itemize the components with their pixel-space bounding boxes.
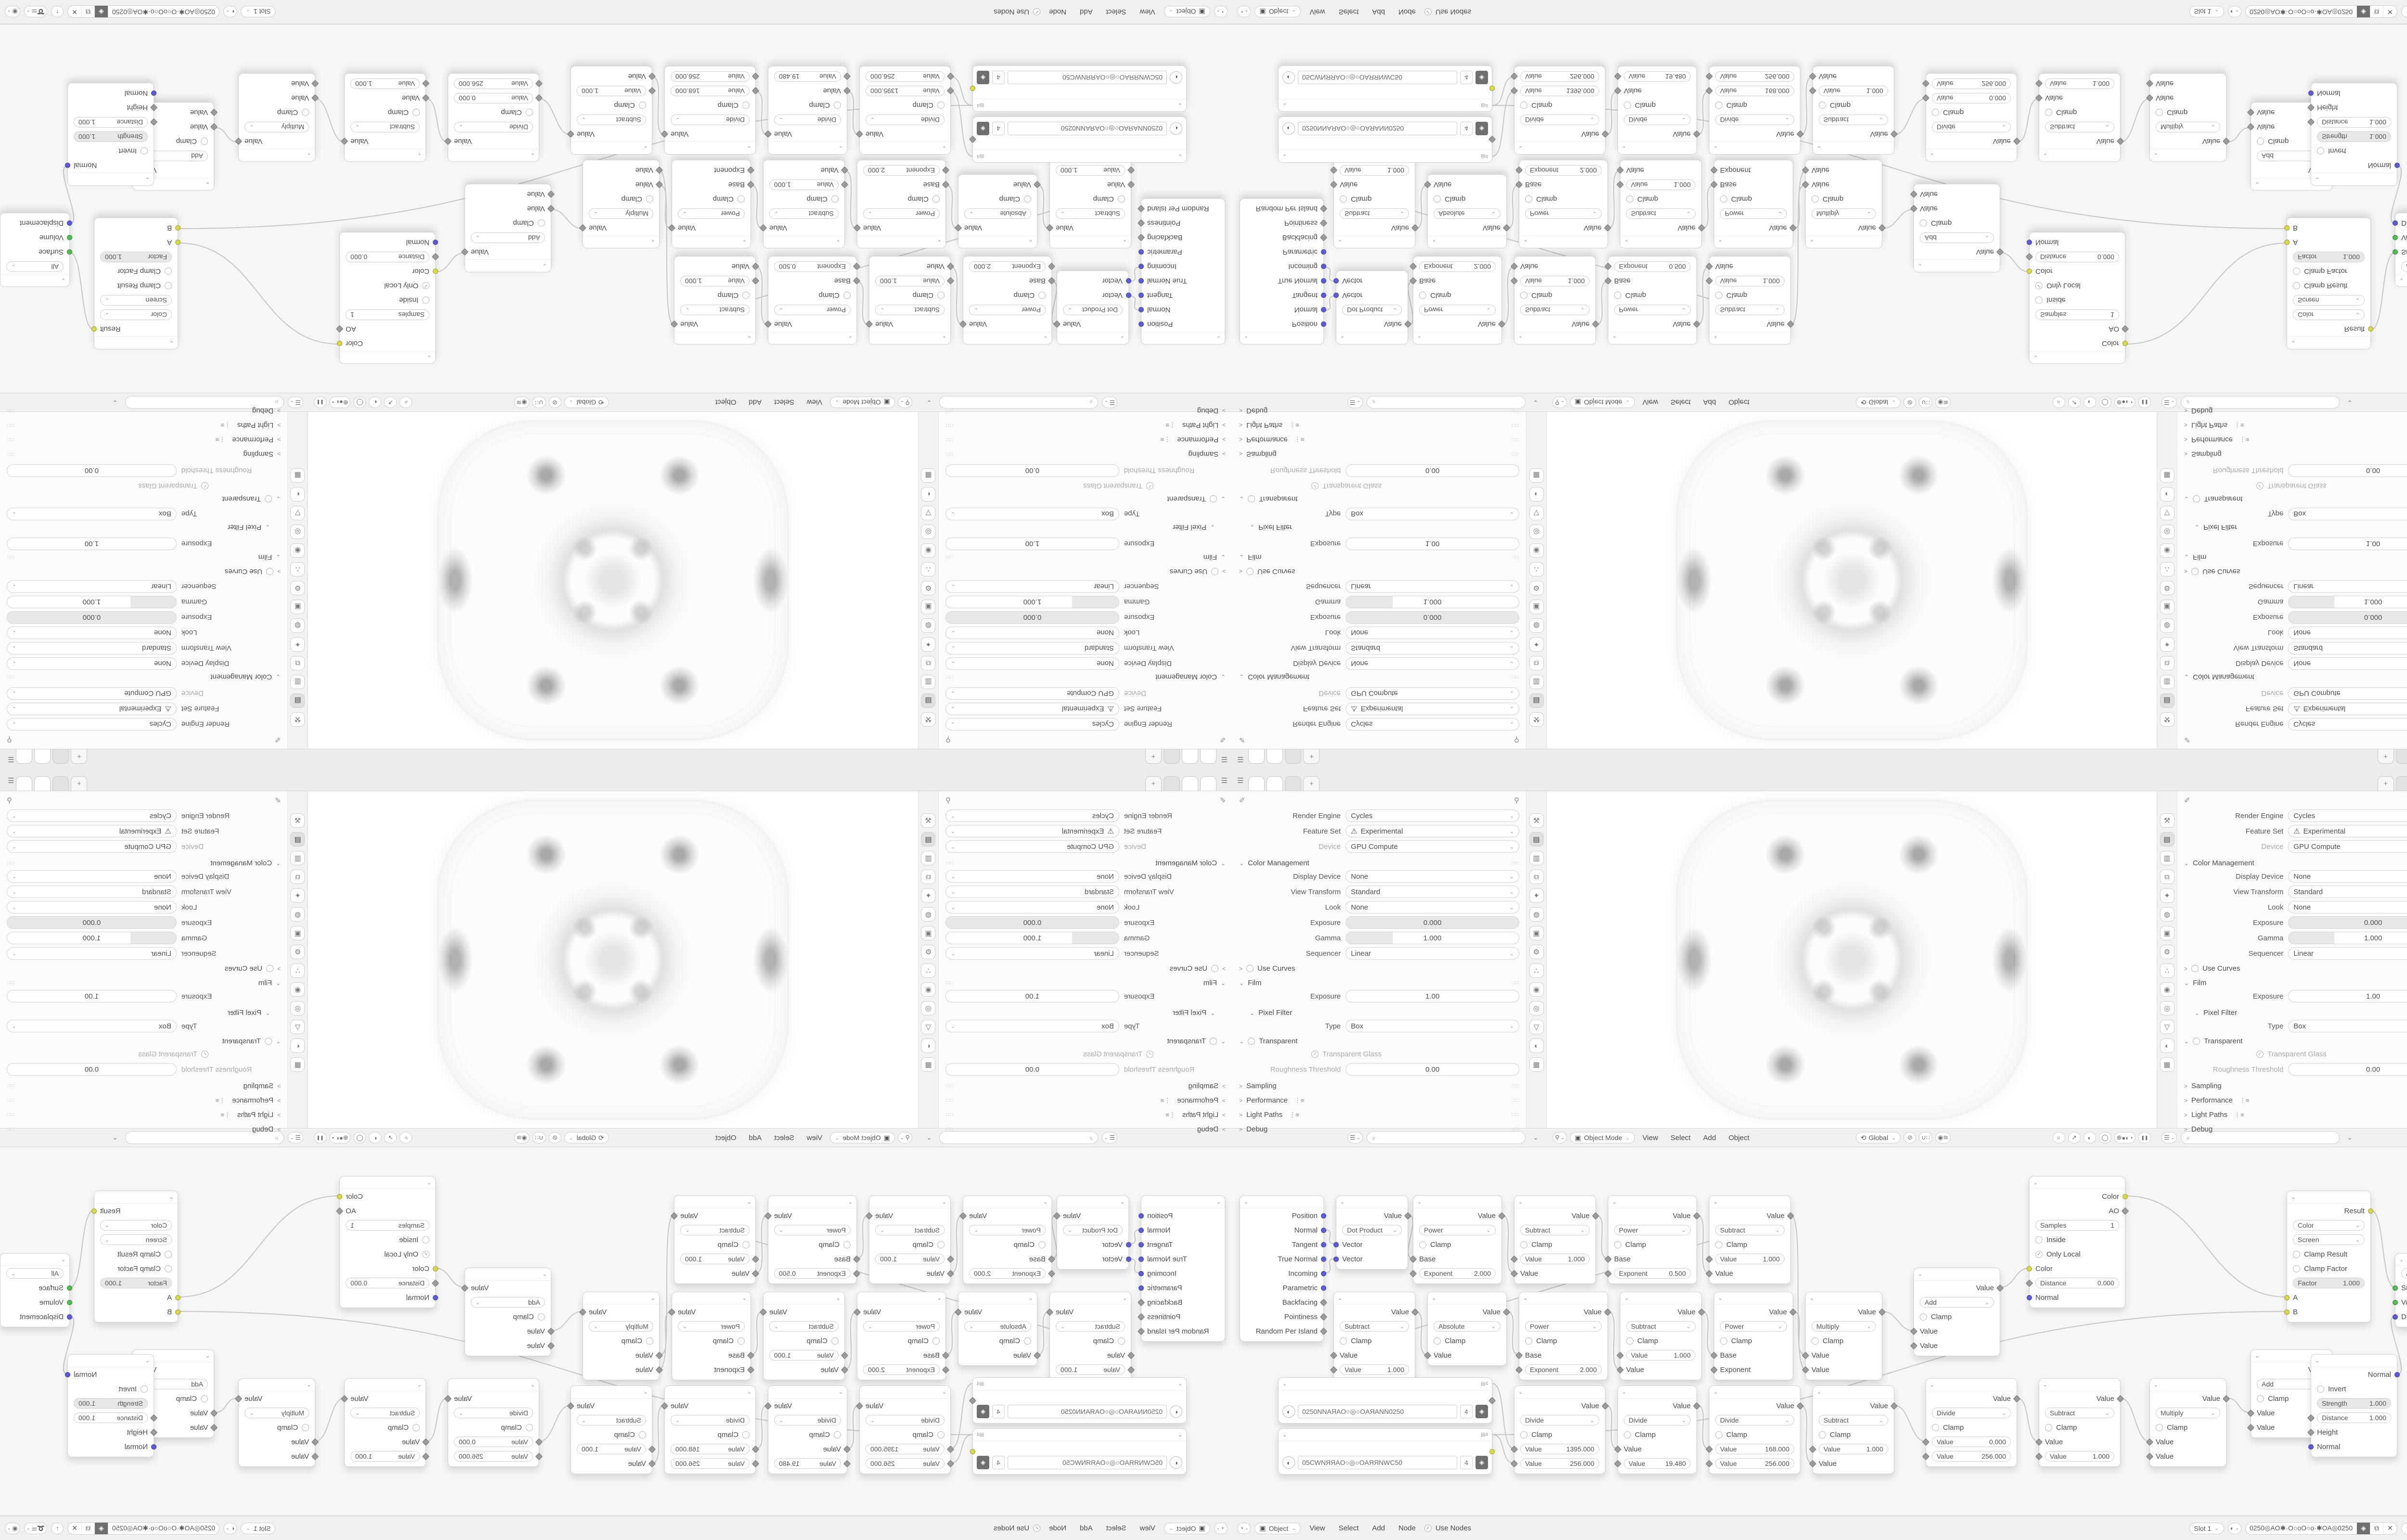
add-slot-button[interactable]: + bbox=[71, 776, 87, 791]
render-engine-select[interactable]: Cycles⌄ bbox=[1346, 809, 1519, 822]
viewport-3d[interactable] bbox=[1547, 412, 2157, 749]
node-checkbox[interactable] bbox=[1340, 196, 1347, 203]
pin-icon[interactable]: ⚲ bbox=[7, 796, 12, 805]
node-checkbox[interactable] bbox=[302, 109, 309, 116]
use-curves-checkbox[interactable] bbox=[266, 568, 273, 575]
node-sub6[interactable]: ⌄ValueSubtract⌄ClampValueValue1.000 bbox=[344, 73, 426, 162]
shader-mode-select[interactable]: ▣Object⌄ bbox=[1255, 1523, 1301, 1534]
magnify-icon[interactable]: ⌕ bbox=[400, 397, 412, 408]
node-collapse-chevron[interactable]: ⌄ bbox=[1714, 1292, 1793, 1305]
node-checkbox[interactable] bbox=[1715, 1431, 1722, 1438]
menu-node[interactable]: Node bbox=[1044, 1524, 1071, 1532]
film-exposure-field[interactable]: 1.00 bbox=[7, 990, 177, 1002]
render-slot-tab-active[interactable] bbox=[1164, 776, 1180, 791]
node-pow1[interactable]: ⌄ValuePower⌄ClampBaseExponent2.000 bbox=[963, 1195, 1052, 1284]
node-checkbox[interactable] bbox=[1626, 196, 1633, 203]
node-checkbox[interactable] bbox=[2035, 1236, 2043, 1244]
props-tab-modifiers[interactable]: ⚙ bbox=[2160, 581, 2174, 595]
props-tab-view-layer[interactable]: ⧉ bbox=[291, 870, 305, 884]
transparent-glass-checkbox[interactable]: ✓ bbox=[1311, 1051, 1319, 1058]
node-checkbox[interactable] bbox=[1812, 1337, 1819, 1345]
menu-icon[interactable]: ☰ bbox=[1237, 756, 1243, 764]
node-operation-select[interactable]: Divide⌄ bbox=[671, 1415, 750, 1425]
node-add1[interactable]: ⌄ValueAdd⌄ClampValueValue bbox=[1914, 184, 2000, 272]
magnify-icon[interactable]: ⌕ bbox=[2053, 1132, 2065, 1143]
props-tab-render[interactable]: ▤ bbox=[2160, 832, 2174, 847]
menu-view[interactable]: View bbox=[1305, 1524, 1330, 1532]
node-value-field[interactable]: Value1.000 bbox=[577, 1444, 646, 1454]
render-slot-tab[interactable] bbox=[1248, 776, 1265, 791]
look-select[interactable]: None⌄ bbox=[2288, 901, 2407, 913]
props-tab-view-layer[interactable]: ⧉ bbox=[291, 656, 305, 670]
node-collapse-chevron[interactable]: ⌄ bbox=[1813, 141, 1894, 154]
node-div1[interactable]: ⌄ValueDivide⌄ClampValue1395.000Value256.… bbox=[1514, 66, 1605, 154]
node-operation-select[interactable]: Add⌄ bbox=[471, 232, 545, 243]
node-collapse-chevron[interactable]: ⌄ bbox=[764, 1292, 844, 1305]
nodegroup-user-count[interactable]: 4 bbox=[1460, 71, 1473, 84]
props-tab-world[interactable]: ◍ bbox=[2160, 618, 2174, 633]
node-collapse-chevron[interactable]: ⌄ bbox=[1336, 332, 1408, 344]
render-slot-tab-active[interactable] bbox=[2396, 749, 2407, 764]
render-slot-tab[interactable] bbox=[1248, 749, 1265, 764]
snap-button[interactable]: ∪∷ bbox=[1919, 397, 1932, 408]
shader-mode-select[interactable]: ▣Object⌄ bbox=[1164, 6, 1210, 18]
node-collapse-chevron[interactable]: ⌄ bbox=[860, 1386, 950, 1399]
node-sub1[interactable]: ⌄ValueSubtract⌄ClampValue1.000Value bbox=[1514, 1195, 1596, 1284]
gamma-slider[interactable]: 1.000 bbox=[1346, 932, 1519, 944]
node-checkbox[interactable] bbox=[1038, 1241, 1046, 1248]
props-tab-modifiers[interactable]: ⚙ bbox=[291, 581, 305, 595]
node-checkbox[interactable] bbox=[165, 268, 172, 275]
debug-section[interactable]: >Debug∷∷ bbox=[1239, 1125, 1519, 1133]
material-datablock[interactable]: 0250◎AO✱·O○oO○o·✱OA◎0250 ◈ ⧉ ✕ bbox=[67, 1522, 220, 1535]
proportional-editing-button[interactable]: ◉≋ bbox=[1935, 1132, 1951, 1143]
node-value-field[interactable]: Value1395.000 bbox=[1520, 86, 1599, 96]
node-checkbox[interactable] bbox=[2257, 138, 2264, 145]
node-checkbox[interactable] bbox=[2045, 1424, 2052, 1431]
menu-view[interactable]: View bbox=[1135, 8, 1160, 16]
node-value-field[interactable]: Value256.000 bbox=[671, 1458, 750, 1469]
light-paths-section[interactable]: >Light Paths⋮≡∷∷ bbox=[945, 421, 1226, 429]
menu-view[interactable]: View bbox=[1305, 8, 1330, 16]
props-tab-render[interactable]: ▤ bbox=[1529, 832, 1544, 847]
performance-section[interactable]: >Performance⋮≡∷∷ bbox=[7, 436, 281, 444]
props-menu-button[interactable]: ☰⌄ bbox=[1347, 1132, 1363, 1143]
debug-section[interactable]: >Debug∷∷ bbox=[945, 1125, 1226, 1133]
nodegroup-user-count[interactable]: 4 bbox=[992, 1456, 1005, 1469]
node-checkbox[interactable] bbox=[1434, 1337, 1441, 1345]
color-management-section[interactable]: ⌄Color Management∷∷ bbox=[2184, 859, 2407, 867]
pixel-filter-type-select[interactable]: Box⌄ bbox=[945, 508, 1119, 520]
use-nodes-checkbox[interactable]: ✓ bbox=[1424, 8, 1432, 15]
collapse-icon[interactable]: ⌄ bbox=[1529, 1132, 1542, 1143]
node-socket[interactable] bbox=[2393, 235, 2398, 241]
node-sub3[interactable]: ⌄ValueSubtract⌄ClampValueValue1.000 bbox=[1333, 1292, 1415, 1380]
node-operation-select[interactable]: Subtract⌄ bbox=[2045, 1408, 2114, 1418]
color-management-section[interactable]: ⌄Color Management∷∷ bbox=[945, 859, 1226, 867]
node-checkbox[interactable] bbox=[141, 1386, 148, 1393]
node-socket[interactable] bbox=[1139, 1257, 1144, 1262]
node-collapse-chevron[interactable]: ⌄ bbox=[2150, 149, 2226, 161]
color-management-section[interactable]: ⌄Color Management∷∷ bbox=[2184, 673, 2407, 681]
node-value-field[interactable]: Distance1.000 bbox=[74, 1412, 148, 1423]
render-slot-tab[interactable] bbox=[1182, 776, 1198, 791]
node-pow3[interactable]: ⌄ValuePower⌄ClampBaseExponent2.000 bbox=[857, 160, 946, 248]
feature-set-select[interactable]: ⚠Experimental⌄ bbox=[2288, 825, 2407, 837]
nodegroup-user-count[interactable]: 4 bbox=[1460, 122, 1473, 135]
material-datablock[interactable]: 0250◎AO✱·O○oO○o·✱OA◎0250 ◈ ⧉ ✕ bbox=[2245, 6, 2397, 18]
node-geo[interactable]: ⌄PositionNormalTangentTrue NormalIncomin… bbox=[1240, 1195, 1324, 1342]
node-operation-select[interactable]: Divide⌄ bbox=[454, 122, 533, 132]
exposure-slider[interactable]: 0.000 bbox=[2288, 916, 2407, 929]
fake-user-shield-icon[interactable]: ◈ bbox=[977, 1405, 989, 1418]
render-slot-tab[interactable] bbox=[1200, 749, 1216, 764]
node-collapse-chevron[interactable]: ⌄ bbox=[1618, 141, 1696, 154]
node-div4[interactable]: ⌄ValueDivide⌄ClampValue0.000Value256.000 bbox=[1926, 1378, 2017, 1467]
node-collapse-chevron[interactable]: ⌄ bbox=[1620, 235, 1701, 248]
node-checkbox[interactable] bbox=[932, 196, 940, 203]
node-checkbox[interactable] bbox=[1624, 1431, 1631, 1438]
transparent-glass-row[interactable]: ✓ Transparent Glass bbox=[1311, 482, 1519, 490]
node-value-field[interactable]: Value256.000 bbox=[866, 71, 945, 82]
roughness-threshold-field[interactable]: 0.00 bbox=[2288, 464, 2407, 477]
node-operation-select[interactable]: Divide⌄ bbox=[1520, 1415, 1599, 1425]
node-collapse-chevron[interactable]: ⌄ bbox=[583, 1292, 659, 1305]
node-out[interactable]: ⌄All⌄SurfaceVolumeDisplacement bbox=[0, 213, 70, 287]
node-operation-select[interactable]: Subtract⌄ bbox=[1626, 1321, 1695, 1332]
editor-type-button[interactable]: ◔⌄ bbox=[1214, 1523, 1228, 1534]
node-operation-select[interactable]: Power⌄ bbox=[969, 1225, 1046, 1235]
node-operation-select[interactable]: Power⌄ bbox=[678, 208, 745, 219]
node-operation-select[interactable]: Divide⌄ bbox=[1520, 115, 1599, 125]
node-sub2[interactable]: ⌄ValueSubtract⌄ClampValue1.000Value bbox=[674, 1195, 756, 1284]
node-checkbox[interactable] bbox=[937, 1431, 945, 1438]
nodegroup-name[interactable]: 0250NNAЯAO○◎○OAЯANN0250 bbox=[1298, 1405, 1457, 1418]
node-mix[interactable]: ⌄ResultColor⌄Screen⌄Clamp ResultClamp Fa… bbox=[94, 1191, 178, 1322]
node-checkbox[interactable] bbox=[834, 1431, 841, 1438]
node-grpA[interactable]: ⌄▤4◐0250NNAЯAO○◎○OAЯANN02504◈ bbox=[972, 116, 1187, 163]
node-socket[interactable] bbox=[91, 327, 97, 332]
node-value-field[interactable]: Value1.000 bbox=[1626, 1350, 1695, 1360]
display-device-select[interactable]: None⌄ bbox=[7, 870, 177, 883]
transparent-row[interactable]: ⌄ Transparent bbox=[2184, 495, 2407, 503]
add-slot-button[interactable]: + bbox=[1303, 776, 1320, 791]
props-tab-output[interactable]: ▥ bbox=[1529, 675, 1544, 689]
feature-set-select[interactable]: ⚠Experimental⌄ bbox=[2288, 703, 2407, 715]
display-device-select[interactable]: None⌄ bbox=[2288, 870, 2407, 883]
node-collapse-chevron[interactable]: ⌄ bbox=[94, 336, 178, 349]
node-value-field[interactable]: Value256.000 bbox=[866, 1458, 945, 1469]
node-geo[interactable]: ⌄PositionNormalTangentTrue NormalIncomin… bbox=[1141, 198, 1225, 345]
props-tab-texture[interactable]: ▦ bbox=[2160, 1057, 2174, 1072]
feature-set-select[interactable]: ⚠Experimental⌄ bbox=[1346, 825, 1519, 837]
node-checkbox[interactable] bbox=[1118, 196, 1125, 203]
props-tab-data[interactable]: ▽ bbox=[1529, 1020, 1544, 1034]
props-tab-tool[interactable]: ⚒ bbox=[1529, 813, 1544, 828]
node-checkbox[interactable] bbox=[2293, 268, 2300, 275]
node-pow3[interactable]: ⌄ValuePower⌄ClampBaseExponent2.000 bbox=[1519, 1292, 1608, 1380]
node-socket[interactable] bbox=[2393, 221, 2398, 226]
node-socket[interactable] bbox=[67, 1314, 72, 1320]
gamma-slider[interactable]: 1.000 bbox=[7, 932, 177, 944]
node-value-field[interactable]: Distance1.000 bbox=[2317, 117, 2391, 128]
pause-render-button[interactable]: ❚❚ bbox=[2138, 1132, 2151, 1143]
pixel-filter-type-select[interactable]: Box⌄ bbox=[2288, 508, 2407, 520]
material-name[interactable]: 0250◎AO✱·O○oO○o·✱OA◎0250 bbox=[2246, 6, 2356, 18]
view-transform-select[interactable]: Standard⌄ bbox=[2288, 885, 2407, 898]
node-operation-select[interactable]: Subtract⌄ bbox=[875, 305, 945, 315]
props-tab-physics[interactable]: ◉ bbox=[291, 982, 305, 997]
menu-node[interactable]: Node bbox=[1394, 8, 1421, 16]
node-pow4[interactable]: ⌄ValuePower⌄ClampBaseExponent bbox=[672, 1292, 751, 1380]
node-collapse-chevron[interactable]: ⌄ bbox=[958, 1292, 1037, 1305]
fake-user-icon[interactable]: ◈ bbox=[95, 1523, 108, 1534]
node-operation-select[interactable]: Screen⌄ bbox=[2293, 1234, 2365, 1245]
node-collapse-chevron[interactable]: ⌄ bbox=[239, 149, 315, 161]
feature-set-select[interactable]: ⚠Experimental⌄ bbox=[945, 825, 1119, 837]
props-tab-world[interactable]: ◍ bbox=[291, 618, 305, 633]
roughness-threshold-field[interactable]: 0.00 bbox=[945, 1063, 1119, 1076]
shading-mode-buttons[interactable]: ⊕●◐◔ bbox=[2114, 1132, 2135, 1143]
transparent-row[interactable]: ⌄ Transparent bbox=[945, 495, 1226, 503]
nodegroup-icon[interactable]: ◐ bbox=[1282, 122, 1295, 135]
props-tab-constraints[interactable]: ◎ bbox=[2160, 1001, 2174, 1015]
node-operation-select[interactable]: Power⌄ bbox=[1419, 305, 1496, 315]
xray-toggle[interactable]: ◯ bbox=[353, 397, 366, 408]
sequencer-select[interactable]: Linear⌄ bbox=[945, 580, 1119, 593]
node-socket[interactable] bbox=[2393, 1300, 2398, 1305]
node-socket[interactable] bbox=[1333, 1242, 1339, 1247]
node-socket[interactable] bbox=[65, 1372, 70, 1377]
menu-add[interactable]: Add bbox=[1367, 8, 1390, 16]
use-nodes-checkbox[interactable]: ✓ bbox=[1033, 8, 1040, 15]
node-value-field[interactable]: Value256.000 bbox=[454, 1451, 533, 1462]
node-value-field[interactable]: Value19.480 bbox=[1624, 71, 1691, 82]
transparent-row[interactable]: ⌄ Transparent bbox=[1239, 495, 1519, 503]
node-collapse-chevron[interactable]: ⌄ bbox=[1714, 235, 1793, 248]
pixel-filter-section[interactable]: ⌄Pixel Filter bbox=[1250, 1009, 1519, 1017]
material-name[interactable]: 0250◎AO✱·O○oO○o·✱OA◎0250 bbox=[108, 6, 219, 18]
view-transform-select[interactable]: Standard⌄ bbox=[7, 642, 177, 654]
look-select[interactable]: None⌄ bbox=[1346, 627, 1519, 639]
look-select[interactable]: None⌄ bbox=[945, 901, 1119, 913]
node-operation-select[interactable]: All⌄ bbox=[2401, 1268, 2407, 1279]
transparent-checkbox[interactable] bbox=[2193, 1038, 2200, 1045]
transparent-checkbox[interactable] bbox=[1248, 1038, 1255, 1045]
props-tab-world[interactable]: ◍ bbox=[291, 907, 305, 922]
device-select[interactable]: GPU Compute⌄ bbox=[2288, 687, 2407, 700]
node-collapse-chevron[interactable]: ⌄ bbox=[869, 332, 950, 344]
props-tab-physics[interactable]: ◉ bbox=[1529, 982, 1544, 997]
transparent-row[interactable]: ⌄ Transparent bbox=[7, 495, 281, 503]
node-value-field[interactable]: Exponent2.000 bbox=[1525, 165, 1602, 176]
material-datablock[interactable]: 0250◎AO✱·O○oO○o·✱OA◎0250 ◈ ⧉ ✕ bbox=[67, 6, 220, 18]
nodegroup-icon[interactable]: ◐ bbox=[1170, 1405, 1182, 1418]
pause-render-button[interactable]: ❚❚ bbox=[2138, 397, 2151, 408]
use-curves-row[interactable]: > Use Curves bbox=[2184, 567, 2407, 576]
transparent-glass-row[interactable]: ✓ Transparent Glass bbox=[7, 1050, 208, 1058]
node-checkbox[interactable] bbox=[1419, 1241, 1426, 1248]
node-abs1[interactable]: ⌄ValueAbsolute⌄ClampValue bbox=[958, 174, 1037, 248]
collapse-icon[interactable]: ⌄ bbox=[923, 397, 935, 408]
transparent-row[interactable]: ⌄ Transparent bbox=[1239, 1037, 1519, 1045]
props-tab-object[interactable]: ▣ bbox=[921, 926, 936, 940]
props-tab-texture[interactable]: ▦ bbox=[921, 468, 936, 483]
node-socket[interactable] bbox=[1139, 1271, 1144, 1276]
node-checkbox[interactable] bbox=[141, 148, 148, 155]
node-value-field[interactable]: Value1.000 bbox=[1520, 1254, 1590, 1264]
node-collapse-chevron[interactable]: ⌄ bbox=[1709, 1196, 1790, 1208]
props-menu-button[interactable]: ☰⌄ bbox=[2161, 1132, 2177, 1143]
node-grpB[interactable]: ⌄▤4◐05CWNЯЯAO○◎○OAЯЯNWC504◈ bbox=[1278, 65, 1492, 112]
props-tab-render[interactable]: ▤ bbox=[291, 832, 305, 847]
menu-icon[interactable]: ☰ bbox=[1221, 776, 1228, 785]
shading-mode-buttons[interactable]: ⊕●◐◔ bbox=[329, 397, 350, 408]
node-value-field[interactable]: Value168.000 bbox=[1715, 86, 1794, 96]
menu-view[interactable]: View bbox=[1638, 398, 1663, 407]
pause-render-button[interactable]: ❚❚ bbox=[314, 397, 326, 408]
active-tool-button[interactable]: ⚲⌄ bbox=[898, 397, 912, 408]
film-exposure-field[interactable]: 1.00 bbox=[1346, 538, 1519, 550]
shader-node-editor[interactable]: ⌄PositionNormalTangentTrue NormalIncomin… bbox=[0, 24, 1232, 393]
node-operation-select[interactable]: Power⌄ bbox=[969, 305, 1046, 315]
props-tab-constraints[interactable]: ◎ bbox=[1529, 525, 1544, 539]
node-collapse-chevron[interactable]: ⌄ bbox=[1519, 235, 1607, 248]
performance-section[interactable]: >Performance⋮≡∷∷ bbox=[945, 436, 1226, 444]
props-tab-world[interactable]: ◍ bbox=[921, 618, 936, 633]
props-tab-constraints[interactable]: ◎ bbox=[2160, 525, 2174, 539]
sequencer-select[interactable]: Linear⌄ bbox=[2288, 947, 2407, 960]
device-select[interactable]: GPU Compute⌄ bbox=[7, 687, 177, 700]
node-operation-select[interactable]: Screen⌄ bbox=[100, 295, 172, 306]
node-operation-select[interactable]: Multiply⌄ bbox=[589, 1321, 653, 1332]
props-tab-tool[interactable]: ⚒ bbox=[1529, 712, 1544, 727]
film-exposure-field[interactable]: 1.00 bbox=[7, 538, 177, 550]
node-checkbox[interactable] bbox=[2035, 297, 2043, 304]
node-value-field[interactable]: Samples1 bbox=[346, 1220, 429, 1231]
node-collapse-chevron[interactable]: ⌄ bbox=[1057, 1196, 1128, 1208]
node-operation-select[interactable]: Dot Product⌄ bbox=[1342, 305, 1402, 315]
render-slot-tab-active[interactable] bbox=[1285, 749, 1301, 764]
node-operation-select[interactable]: Subtract⌄ bbox=[577, 115, 646, 125]
view-transform-select[interactable]: Standard⌄ bbox=[2288, 642, 2407, 654]
props-tab-modifiers[interactable]: ⚙ bbox=[1529, 945, 1544, 959]
node-socket[interactable] bbox=[1139, 293, 1144, 298]
node-checkbox[interactable] bbox=[1118, 1337, 1125, 1345]
props-tab-constraints[interactable]: ◎ bbox=[1529, 1001, 1544, 1015]
menu-add[interactable]: Add bbox=[1075, 1524, 1098, 1532]
props-tab-material[interactable]: ◐ bbox=[2160, 1039, 2174, 1053]
node-value-field[interactable]: Value1.000 bbox=[2045, 78, 2114, 89]
fake-user-shield-icon[interactable]: ◈ bbox=[1475, 1405, 1488, 1418]
node-operation-select[interactable]: Power⌄ bbox=[774, 305, 851, 315]
render-slot-tab-active[interactable] bbox=[1285, 776, 1301, 791]
color-management-section[interactable]: ⌄Color Management∷∷ bbox=[7, 673, 281, 681]
node-collapse-chevron[interactable]: ⌄ bbox=[2039, 149, 2120, 161]
props-tab-view-layer[interactable]: ⧉ bbox=[921, 656, 936, 670]
node-operation-select[interactable]: Subtract⌄ bbox=[577, 1415, 646, 1425]
node-operation-select[interactable]: Multiply⌄ bbox=[2156, 1408, 2220, 1418]
node-collapse-chevron[interactable]: ⌄ bbox=[571, 1386, 652, 1399]
node-socket[interactable] bbox=[2284, 240, 2290, 245]
props-tab-render[interactable]: ▤ bbox=[1529, 693, 1544, 708]
node-operation-select[interactable]: Power⌄ bbox=[1525, 1321, 1602, 1332]
use-curves-row[interactable]: > Use Curves bbox=[7, 964, 281, 973]
gamma-slider[interactable]: 1.000 bbox=[945, 596, 1119, 608]
node-collapse-chevron[interactable]: ⌄ bbox=[345, 1379, 426, 1391]
node-checkbox[interactable] bbox=[1434, 196, 1441, 203]
node-add1[interactable]: ⌄ValueAdd⌄ClampValueValue bbox=[465, 1268, 551, 1356]
render-slot-tab[interactable] bbox=[34, 776, 51, 791]
node-checkbox[interactable] bbox=[538, 220, 545, 227]
node-operation-select[interactable]: Power⌄ bbox=[1720, 208, 1787, 219]
sampling-section[interactable]: >Sampling∷∷ bbox=[1239, 1082, 1519, 1090]
node-collapse-chevron[interactable]: ⌄ bbox=[869, 1196, 950, 1208]
pixel-filter-section[interactable]: ⌄Pixel Filter bbox=[1250, 523, 1519, 531]
node-collapse-chevron[interactable]: ⌄ bbox=[239, 1379, 315, 1391]
add-slot-button[interactable]: + bbox=[2378, 776, 2394, 791]
node-operation-select[interactable]: Subtract⌄ bbox=[1819, 1415, 1888, 1425]
node-collapse-chevron[interactable]: ⌄ bbox=[1141, 332, 1225, 344]
node-checkbox[interactable] bbox=[742, 292, 750, 299]
up-arrow-button[interactable]: ↑ bbox=[51, 6, 64, 18]
render-engine-select[interactable]: Cycles⌄ bbox=[945, 718, 1119, 731]
material-slot-select[interactable]: Slot 1⌄ bbox=[2189, 1523, 2224, 1534]
material-preview-icon[interactable]: ◐⌄ bbox=[223, 1523, 237, 1534]
node-operation-select[interactable]: Subtract⌄ bbox=[1626, 208, 1695, 219]
node-sub3[interactable]: ⌄ValueSubtract⌄ClampValueValue1.000 bbox=[1049, 160, 1131, 248]
pin-icon[interactable]: ⚲ bbox=[1514, 735, 1519, 744]
collapse-icon[interactable]: ⌄ bbox=[1529, 397, 1542, 408]
look-select[interactable]: None⌄ bbox=[1346, 901, 1519, 913]
props-menu-button[interactable]: ☰⌄ bbox=[288, 397, 303, 408]
node-operation-select[interactable]: Multiply⌄ bbox=[245, 122, 309, 132]
node-operation-select[interactable]: Power⌄ bbox=[1720, 1321, 1787, 1332]
node-collapse-chevron[interactable]: ⌄ bbox=[465, 259, 551, 272]
menu-view[interactable]: View bbox=[802, 398, 827, 407]
render-slot-tab-active[interactable] bbox=[52, 749, 69, 764]
node-checkbox[interactable] bbox=[1715, 102, 1722, 109]
fake-user-shield-icon[interactable]: ◈ bbox=[977, 122, 989, 135]
node-checkbox[interactable] bbox=[1520, 1431, 1527, 1438]
node-sub4[interactable]: ⌄ValueSubtract⌄ClampValue1.000Value bbox=[1620, 1292, 1702, 1380]
material-slot-select[interactable]: Slot 1⌄ bbox=[2189, 6, 2224, 18]
light-paths-section[interactable]: >Light Paths⋮≡∷∷ bbox=[2184, 1111, 2407, 1119]
node-value-field[interactable]: Samples1 bbox=[2035, 309, 2119, 320]
node-socket[interactable] bbox=[2027, 1295, 2032, 1300]
exposure-slider[interactable]: 0.000 bbox=[7, 916, 177, 929]
props-tab-texture[interactable]: ▦ bbox=[1529, 468, 1544, 483]
node-checkbox[interactable] bbox=[1419, 292, 1426, 299]
node-operation-select[interactable]: Color⌄ bbox=[100, 1220, 172, 1231]
node-socket[interactable] bbox=[1321, 1228, 1326, 1233]
feature-set-select[interactable]: ⚠Experimental⌄ bbox=[7, 703, 177, 715]
node-sub2[interactable]: ⌄ValueSubtract⌄ClampValue1.000Value bbox=[674, 256, 756, 345]
snapping-cluster[interactable]: ➰⚌⌄ bbox=[24, 1523, 47, 1534]
node-socket[interactable] bbox=[2394, 1372, 2400, 1377]
menu-select[interactable]: Select bbox=[769, 398, 799, 407]
view-transform-select[interactable]: Standard⌄ bbox=[1346, 642, 1519, 654]
node-checkbox[interactable] bbox=[738, 196, 745, 203]
node-sub1[interactable]: ⌄ValueSubtract⌄ClampValue1.000Value bbox=[869, 256, 951, 345]
node-collapse-chevron[interactable]: ⌄ bbox=[674, 1196, 755, 1208]
props-menu-button[interactable]: ☰⌄ bbox=[1102, 1132, 1117, 1143]
node-mul1[interactable]: ⌄ValueMultiply⌄ClampValueValue bbox=[1805, 160, 1882, 248]
node-value-field[interactable]: Value1.000 bbox=[577, 86, 646, 96]
node-collapse-chevron[interactable]: ⌄ bbox=[1709, 141, 1800, 154]
proportional-editing-button[interactable]: ◉≋ bbox=[514, 397, 530, 408]
node-operation-select[interactable]: Color⌄ bbox=[100, 309, 172, 320]
